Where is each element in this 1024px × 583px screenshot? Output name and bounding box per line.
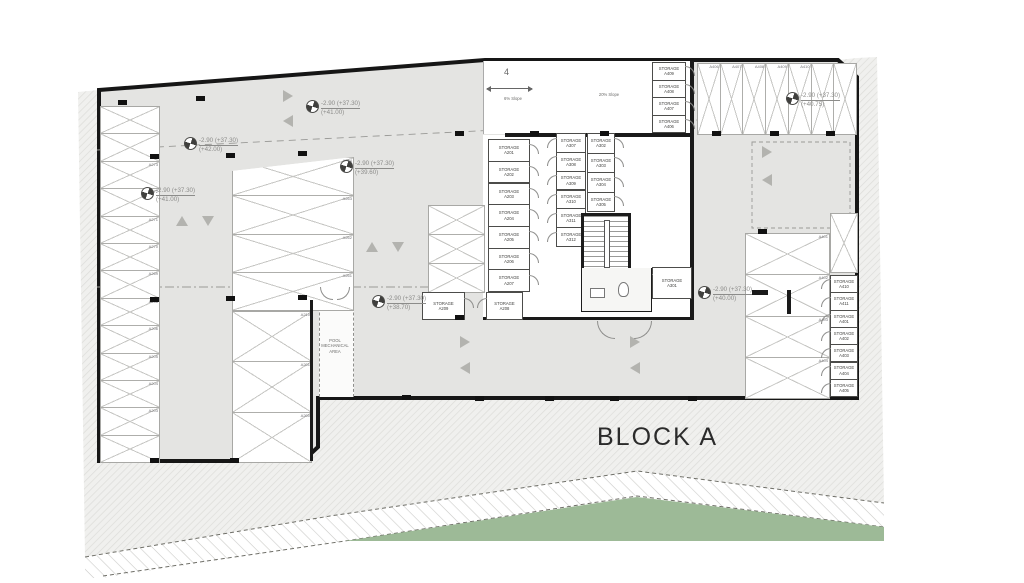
- parking-stall: A201: [233, 362, 311, 412]
- direction-arrow-icon: [630, 336, 640, 348]
- parking-column-left: A273A272A271A270A269A268A206A205A204A203: [100, 106, 160, 463]
- storage-column-left: STORAGEA201STORAGEA202STORAGEA203STORAGE…: [488, 140, 530, 292]
- storage-room-label: STORAGEA311: [561, 213, 581, 224]
- wall-column: [455, 131, 464, 136]
- sink-icon: [590, 288, 605, 298]
- storage-room: STORAGEA310: [556, 190, 586, 210]
- storage-room-label: STORAGEA308: [561, 157, 581, 168]
- parking-stall-label: A410: [800, 65, 809, 69]
- parking-stall: [429, 264, 484, 292]
- elevation-marker: -2.90 (+37.30)(+39.60): [340, 160, 394, 177]
- wc-area: [581, 268, 652, 312]
- wall-stub: [787, 290, 791, 314]
- parking-stall: A269: [101, 271, 159, 298]
- parking-stall: A407: [721, 64, 744, 134]
- wall-column: [610, 396, 619, 401]
- parking-stall-label: A271: [149, 218, 158, 222]
- wall-column: [226, 296, 235, 301]
- storage-room-label: STORAGEA208: [494, 301, 514, 312]
- wall-column: [230, 458, 239, 463]
- storage-room: STORAGEA406: [652, 115, 686, 133]
- block-title: BLOCK A: [597, 423, 718, 452]
- storage-room-label: STORAGEA408: [659, 84, 679, 95]
- storage-room-label: STORAGEA404: [834, 365, 854, 376]
- storage-column-right: STORAGEA302STORAGEA303STORAGEA304STORAGE…: [587, 134, 615, 212]
- storage-room: STORAGEA305: [587, 192, 615, 212]
- direction-arrow-icon: [202, 216, 214, 226]
- parking-stall: A273: [101, 162, 159, 189]
- toilet-icon: [618, 282, 629, 297]
- storage-room-label: STORAGEA309: [561, 175, 581, 186]
- floor-plan-canvas: A273A272A271A270A269A268A206A205A204A203…: [0, 0, 1024, 583]
- storage-room: STORAGEA402: [830, 327, 858, 345]
- parking-stall-label: A201: [301, 363, 310, 367]
- parking-stall: A268: [101, 299, 159, 326]
- storage-room-label: STORAGEA401: [834, 314, 854, 325]
- storage-room-label: STORAGEA406: [659, 119, 679, 130]
- benchmark-icon: [182, 135, 199, 152]
- storage-room: STORAGEA308: [556, 152, 586, 172]
- benchmark-icon: [338, 158, 355, 175]
- wall-column: [600, 131, 609, 136]
- slope-label: 20% Slope: [592, 92, 626, 97]
- storage-room: STORAGEA301: [652, 267, 692, 299]
- storage-room: STORAGEA207: [488, 269, 530, 292]
- storage-column-ramp: STORAGEA409STORAGEA408STORAGEA407STORAGE…: [652, 63, 686, 133]
- parking-stall: [101, 107, 159, 134]
- parking-stall-label: A205: [149, 355, 158, 359]
- storage-room-label: STORAGEA305: [591, 197, 611, 208]
- parking-block-left-lower: A210A201A200: [232, 311, 312, 463]
- elevation-marker: -2.90 (+37.30)(+41.00): [306, 100, 360, 117]
- storage-room: STORAGEA410: [830, 275, 858, 293]
- direction-arrow-icon: [392, 242, 404, 252]
- direction-arrow-icon: [176, 216, 188, 226]
- parking-stall-label: A262: [343, 236, 352, 240]
- parking-stall-label: A408: [755, 65, 764, 69]
- wall-column: [530, 131, 539, 136]
- stair-rail: [604, 220, 610, 267]
- wall-column: [712, 131, 721, 136]
- storage-room: STORAGEA411: [830, 292, 858, 310]
- parking-stall-label: A206: [149, 327, 158, 331]
- wall-column: [770, 131, 779, 136]
- storage-room: STORAGEA303: [587, 153, 615, 173]
- storage-room: STORAGEA307: [556, 133, 586, 153]
- wall-column: [826, 131, 835, 136]
- storage-room: STORAGEA205: [488, 226, 530, 249]
- wall-column: [402, 395, 411, 400]
- storage-room: STORAGEA201: [488, 139, 530, 162]
- storage-room: STORAGEA203: [488, 183, 530, 206]
- storage-room-label: STORAGEA407: [659, 101, 679, 112]
- benchmark-icon: [370, 293, 387, 310]
- storage-room: STORAGEA408: [652, 80, 686, 98]
- storage-room-label: STORAGEA301: [662, 278, 682, 289]
- wall-column: [298, 295, 307, 300]
- storage-room: STORAGEA302: [587, 133, 615, 153]
- benchmark-icon: [139, 185, 156, 202]
- parking-stall-label: A401: [819, 235, 828, 239]
- parking-stall-label: A203: [149, 409, 158, 413]
- elevation-marker: -2.90 (+37.30)(+40.75): [786, 92, 840, 109]
- parking-stall-label: A204: [149, 382, 158, 386]
- parking-stall: A210: [233, 312, 311, 362]
- storage-room: STORAGEA409: [652, 62, 686, 80]
- storage-room-label: STORAGEA402: [834, 331, 854, 342]
- dimension-arrow: [487, 88, 532, 89]
- parking-block-right: A401A402A403A404: [745, 233, 830, 399]
- parking-stall: A261: [233, 273, 353, 310]
- wall-column: [758, 229, 767, 234]
- parking-stall-label: A263: [343, 197, 352, 201]
- stair-icon: [581, 213, 631, 273]
- storage-room: STORAGEA405: [830, 379, 858, 397]
- storage-room: STORAGEA401: [830, 310, 858, 328]
- wall-column: [455, 315, 464, 320]
- wall-column: [196, 96, 205, 101]
- parking-stall: A203: [101, 408, 159, 435]
- direction-arrow-icon: [460, 336, 470, 348]
- storage-room-label: STORAGEA403: [834, 348, 854, 359]
- storage-room: STORAGEA404: [830, 362, 858, 380]
- parking-stall: A401: [746, 234, 829, 275]
- parking-stall: A200: [233, 413, 311, 462]
- wall-column: [688, 396, 697, 401]
- wall-column: [150, 154, 159, 159]
- storage-room-label: STORAGEA209: [433, 301, 453, 312]
- parking-stall: A262: [233, 235, 353, 273]
- storage-room-label: STORAGEA411: [834, 296, 854, 307]
- direction-arrow-icon: [762, 146, 772, 158]
- storage-room-label: STORAGEA204: [499, 210, 519, 221]
- storage-room-label: STORAGEA203: [499, 189, 519, 200]
- parking-stall-label: A407: [732, 65, 741, 69]
- wall-column: [545, 396, 554, 401]
- storage-room-label: STORAGEA205: [499, 232, 519, 243]
- pool-mechanical-label: POOL MECHANICAL AREA: [321, 338, 349, 354]
- benchmark-icon: [696, 284, 713, 301]
- parking-stall: A270: [101, 244, 159, 271]
- parking-stall-label: A409: [778, 65, 787, 69]
- storage-room: STORAGEA309: [556, 171, 586, 191]
- direction-arrow-icon: [762, 174, 772, 186]
- wall-column: [150, 297, 159, 302]
- parking-block-left-upper: A264A263A262A261: [232, 157, 354, 311]
- benchmark-icon: [304, 98, 321, 115]
- parking-stall: A403: [746, 317, 829, 358]
- parking-stall-label: A200: [301, 414, 310, 418]
- wing-wall: [310, 300, 313, 461]
- parking-stall-label: A404: [819, 359, 828, 363]
- parking-stall: A408: [743, 64, 766, 134]
- storage-room: STORAGEA206: [488, 248, 530, 271]
- storage-room-label: STORAGEA405: [834, 383, 854, 394]
- storage-column-far-right: STORAGEA410STORAGEA411STORAGEA401STORAGE…: [830, 276, 858, 397]
- slope-label: 6% Slope: [498, 96, 528, 101]
- parking-stall-label: A269: [149, 272, 158, 276]
- direction-arrow-icon: [630, 362, 640, 374]
- direction-arrow-icon: [283, 90, 293, 102]
- parking-stall: A205: [101, 354, 159, 381]
- storage-room: STORAGEA202: [488, 161, 530, 184]
- storage-room: STORAGEA304: [587, 172, 615, 192]
- parking-stall: [429, 235, 484, 264]
- wall-column: [298, 151, 307, 156]
- storage-room-label: STORAGEA410: [834, 279, 854, 290]
- wall-stub: [752, 290, 768, 295]
- parking-stall-label: A270: [149, 245, 158, 249]
- elevation-marker: -2.90 (+37.30)(+42.00): [184, 137, 238, 154]
- elevation-marker: -2.90 (+37.30)(+40.00): [698, 286, 752, 303]
- parking-stall-label: A273: [149, 163, 158, 167]
- direction-arrow-icon: [283, 115, 293, 127]
- parking-stall: A406: [698, 64, 721, 134]
- storage-room-label: STORAGEA303: [591, 158, 611, 169]
- storage-room-label: STORAGEA307: [561, 138, 581, 149]
- parking-stall: [429, 206, 484, 235]
- storage-room-label: STORAGEA302: [591, 138, 611, 149]
- direction-arrow-icon: [460, 362, 470, 374]
- parking-stall-right-top: [830, 213, 858, 273]
- parking-block-center: [428, 205, 485, 293]
- storage-room: STORAGEA403: [830, 344, 858, 362]
- storage-room-label: STORAGEA312: [561, 232, 581, 243]
- storage-room: STORAGEA208: [486, 292, 523, 320]
- parking-stall-label: A261: [343, 274, 352, 278]
- parking-stall: [831, 214, 857, 272]
- parking-stall: A204: [101, 381, 159, 408]
- storage-room-label: STORAGEA304: [591, 177, 611, 188]
- storage-room-label: STORAGEA202: [499, 167, 519, 178]
- storage-room-label: STORAGEA207: [499, 275, 519, 286]
- parking-stall: A271: [101, 217, 159, 244]
- storage-room-label: STORAGEA310: [561, 194, 581, 205]
- wall-column: [475, 396, 484, 401]
- storage-room: STORAGEA204: [488, 204, 530, 227]
- wall-column: [118, 100, 127, 105]
- elevation-marker: -2.90 (+37.30)(+38.70): [372, 295, 426, 312]
- storage-room-label: STORAGEA201: [499, 145, 519, 156]
- parking-stall: A263: [233, 196, 353, 234]
- benchmark-icon: [784, 90, 801, 107]
- parking-stall: A404: [746, 358, 829, 398]
- storage-room-label: STORAGEA206: [499, 254, 519, 265]
- elevation-marker: -2.90 (+37.30)(+41.00): [141, 187, 195, 204]
- parking-stall: A206: [101, 326, 159, 353]
- wall-column: [150, 458, 159, 463]
- storage-room-label: STORAGEA409: [659, 66, 679, 77]
- parking-stall-label: A406: [709, 65, 718, 69]
- ramp-left-line: [483, 61, 484, 134]
- ramp-number: 4: [504, 67, 509, 77]
- parking-stall-label: A210: [301, 313, 310, 317]
- direction-arrow-icon: [366, 242, 378, 252]
- storage-room: STORAGEA407: [652, 97, 686, 115]
